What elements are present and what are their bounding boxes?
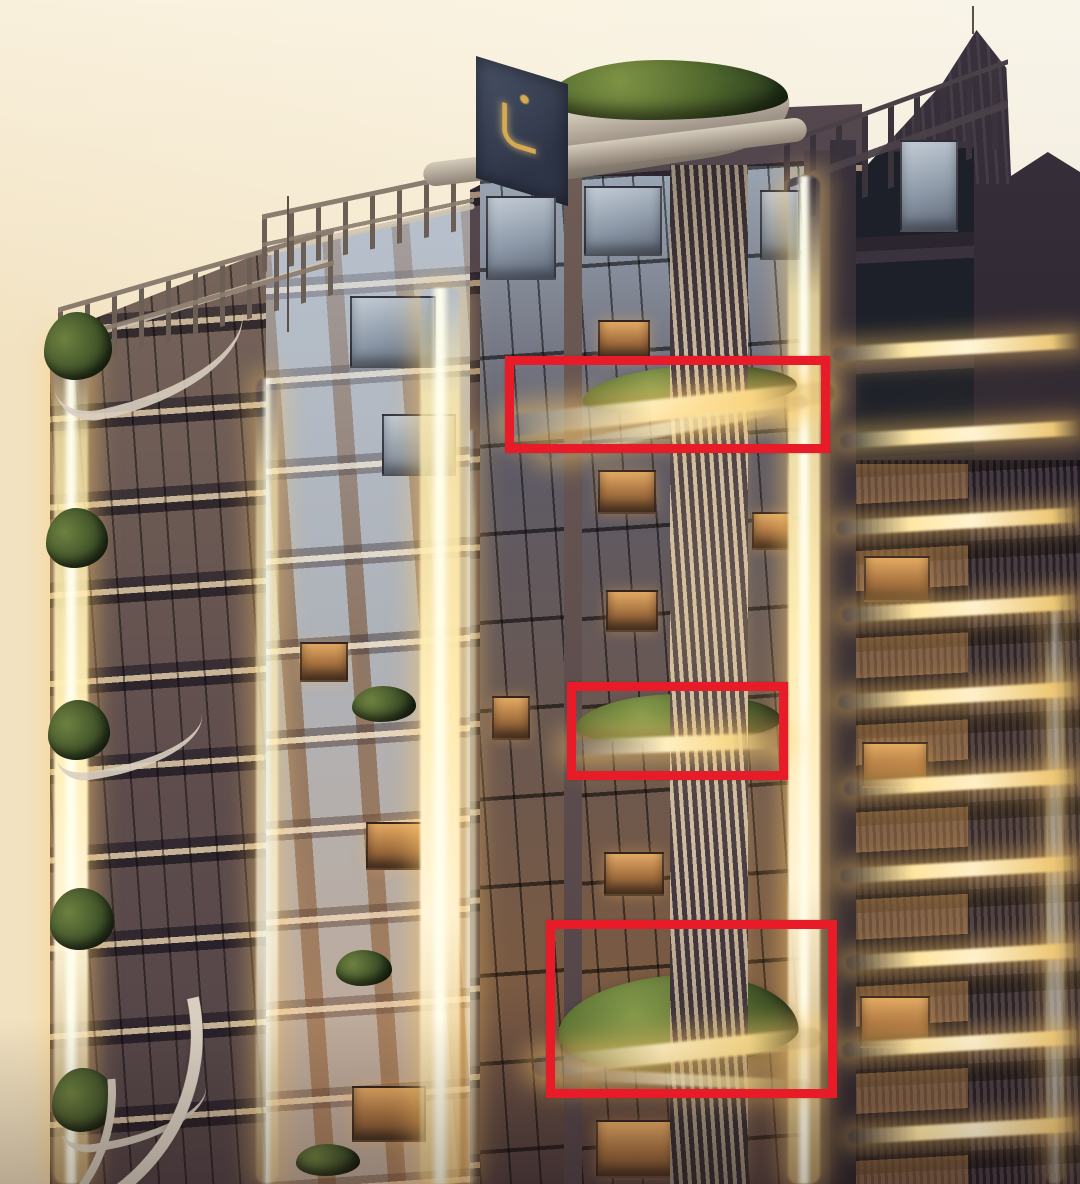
lit-window [604, 852, 664, 896]
planter-blob [46, 508, 108, 568]
lit-window [598, 320, 650, 360]
lit-window [352, 1086, 426, 1142]
glass-window [486, 196, 556, 280]
lit-window [492, 696, 530, 740]
balcony-plant [352, 686, 416, 722]
lit-window [598, 470, 656, 514]
lit-window [596, 1120, 674, 1178]
balcony-plant [336, 950, 392, 986]
gold-monogram-dot-icon [520, 93, 529, 105]
lit-window [752, 512, 792, 550]
lit-window [864, 556, 930, 602]
glass-window [900, 140, 958, 232]
highlight-box-bottom [546, 920, 837, 1098]
building-night-rendering [0, 0, 1080, 1184]
gold-light-strip-vertical [420, 288, 460, 1184]
antenna-spike [972, 6, 974, 34]
glass-window [584, 186, 662, 256]
gold-monogram-icon [502, 102, 536, 154]
lit-window [300, 642, 348, 682]
rooftop-garden [548, 60, 788, 120]
antenna-spike [287, 196, 289, 332]
highlight-box-top [505, 356, 830, 453]
gold-light-strip-vertical [466, 430, 476, 1184]
lit-window [606, 590, 658, 632]
highlight-box-middle [567, 682, 788, 780]
balcony-plant [296, 1144, 360, 1176]
gold-light-strip-vertical [256, 378, 278, 1184]
